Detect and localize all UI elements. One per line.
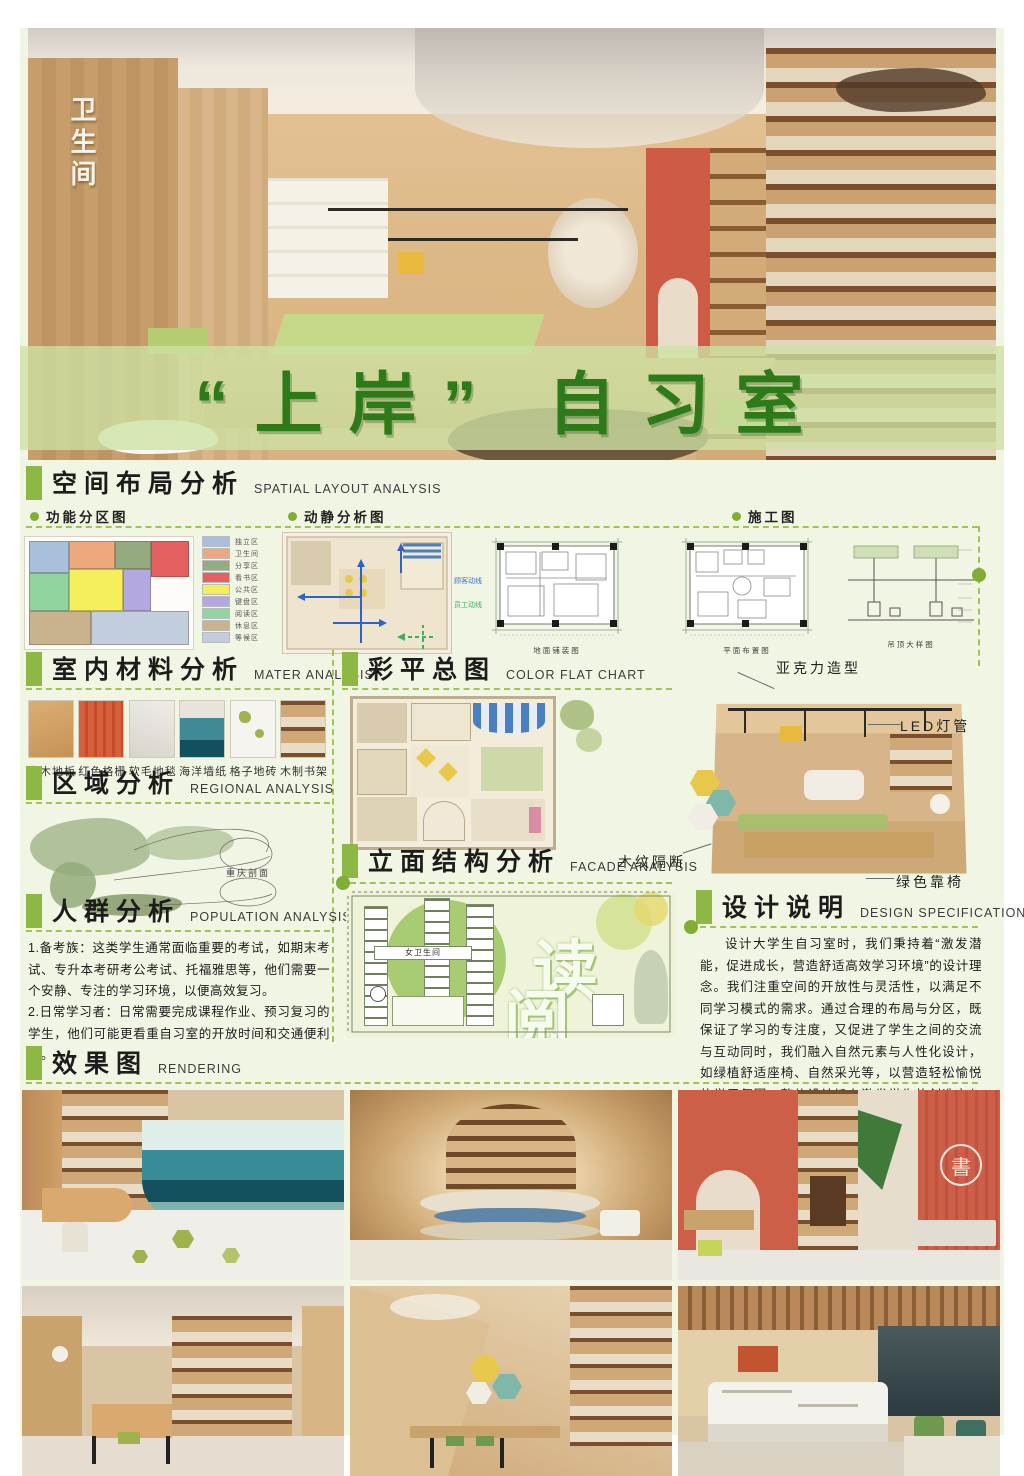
dashed-divider bbox=[26, 802, 330, 804]
dashed-divider bbox=[350, 882, 672, 884]
zoning-plan-diagram bbox=[24, 536, 194, 650]
section-accent-bar bbox=[26, 652, 42, 686]
green-dot bbox=[972, 568, 986, 582]
white-desk bbox=[804, 770, 864, 800]
ceiling-track bbox=[728, 708, 952, 711]
section-accent-bar bbox=[26, 894, 42, 928]
section-title-zh: 效果图 bbox=[52, 1044, 148, 1080]
yellow-panel bbox=[780, 726, 802, 742]
title-band: “上岸” 自习室 bbox=[20, 346, 1004, 450]
leader-line bbox=[866, 878, 894, 879]
dashed-vertical bbox=[332, 650, 334, 1042]
material-swatch-red-grille bbox=[78, 700, 124, 758]
design-poster: 卫生间 “上岸” 自习室 空间布局分析 SPATIAL LAYOUT ANALY… bbox=[0, 0, 1024, 1447]
tree-symbol bbox=[576, 728, 602, 752]
render-thumb-5 bbox=[350, 1286, 672, 1476]
flow-legend: 顾客动线 员工动线 bbox=[454, 576, 482, 610]
paint-splatter-top bbox=[836, 68, 986, 112]
section-title-en: COLOR FLAT CHART bbox=[506, 668, 646, 686]
material-swatch-bookshelf bbox=[280, 700, 326, 758]
dashed-divider bbox=[700, 926, 978, 928]
section-material-header: 室内材料分析 MATER ANALYSIS bbox=[26, 650, 374, 686]
section-accent-bar bbox=[342, 844, 358, 878]
section-accent-bar bbox=[696, 890, 712, 924]
section-title-en: SPATIAL LAYOUT ANALYSIS bbox=[254, 482, 441, 500]
section-title-zh: 设计说明 bbox=[722, 888, 850, 924]
dashed-divider bbox=[26, 688, 330, 690]
section-designspec-header: 设计说明 DESIGN SPECIFICATION bbox=[696, 888, 1024, 924]
flow-analysis-diagram bbox=[282, 532, 452, 654]
zoning-legend: 独立区 卫生间 分享区 看书区 公共区 键盘区 阅读区 休息区 等候区 bbox=[202, 536, 278, 644]
wood-table-row bbox=[744, 832, 934, 858]
sub-label: 功能分区图 bbox=[46, 506, 129, 526]
section-title-en: REGIONAL ANALYSIS bbox=[190, 782, 334, 800]
bullet-icon bbox=[732, 512, 741, 521]
section-population-header: 人群分析 POPULATION ANALYSIS bbox=[26, 892, 352, 928]
bullet-icon bbox=[30, 512, 39, 521]
section-accent-bar bbox=[26, 466, 42, 500]
color-plan-diagram bbox=[350, 696, 556, 850]
section-title-zh: 室内材料分析 bbox=[52, 650, 244, 686]
material-swatch-ocean-wallpaper bbox=[179, 700, 225, 758]
sub-label: 施工图 bbox=[748, 506, 798, 526]
sub-flow-analysis: 动静分析图 bbox=[288, 506, 387, 526]
render-thumb-6 bbox=[678, 1286, 1000, 1476]
section-accent-bar bbox=[26, 1046, 42, 1080]
plan-caption: 平面布置图 bbox=[672, 645, 822, 656]
dashed-divider bbox=[26, 526, 978, 528]
section-spatial-header: 空间布局分析 SPATIAL LAYOUT ANALYSIS bbox=[26, 464, 441, 500]
green-bench bbox=[738, 814, 888, 830]
bullet-icon bbox=[288, 512, 297, 521]
dashed-divider bbox=[26, 930, 330, 932]
section-title-en: POPULATION ANALYSIS bbox=[190, 910, 352, 928]
perspective-render bbox=[684, 674, 984, 896]
cad-plan-1: 地面铺装图 bbox=[482, 534, 632, 656]
round-mirror bbox=[930, 794, 950, 814]
shu-logo: 書 bbox=[940, 1144, 982, 1186]
facade-drawing: 女卫生间 读 阅 bbox=[346, 890, 676, 1038]
render-thumb-4 bbox=[22, 1286, 344, 1476]
annotation-led: LED灯管 bbox=[900, 716, 970, 736]
section-title-zh: 人群分析 bbox=[52, 892, 180, 928]
linear-lamp bbox=[328, 208, 628, 211]
leader-line bbox=[868, 724, 902, 725]
poster-canvas: 卫生间 “上岸” 自习室 空间布局分析 SPATIAL LAYOUT ANALY… bbox=[20, 28, 1004, 1435]
yellow-pendant-lamp bbox=[398, 252, 424, 274]
mini-bookshelf bbox=[890, 734, 952, 792]
section-rendering-header: 效果图 RENDERING bbox=[26, 1044, 242, 1080]
green-dot bbox=[684, 920, 698, 934]
render-thumb-1 bbox=[22, 1090, 344, 1280]
section-accent-bar bbox=[342, 652, 358, 686]
linear-lamp-2 bbox=[388, 238, 578, 241]
section-title-en: RENDERING bbox=[158, 1062, 242, 1080]
map-label: 重庆剖面 bbox=[226, 866, 270, 879]
material-swatch-tile bbox=[230, 700, 276, 758]
section-colorflat-header: 彩平总图 COLOR FLAT CHART bbox=[342, 650, 646, 686]
section-title-zh: 彩平总图 bbox=[368, 650, 496, 686]
material-swatch-carpet bbox=[129, 700, 175, 758]
green-dot bbox=[336, 876, 350, 890]
section-regional-header: 区域分析 REGIONAL ANALYSIS bbox=[26, 764, 334, 800]
sub-construction: 施工图 bbox=[732, 506, 798, 526]
material-swatch-wood-floor bbox=[28, 700, 74, 758]
ceiling-curve bbox=[415, 28, 763, 148]
sub-func-zoning: 功能分区图 bbox=[30, 506, 129, 526]
tree-symbol bbox=[560, 700, 594, 730]
render-thumb-3: 書 bbox=[678, 1090, 1000, 1280]
annotation-wood-partition: 木纹隔断 bbox=[618, 852, 686, 872]
restroom-sign: 卫生间 bbox=[64, 96, 101, 192]
render-thumb-2 bbox=[350, 1090, 672, 1280]
section-title-en: DESIGN SPECIFICATION bbox=[860, 906, 1024, 924]
section-title-zh: 空间布局分析 bbox=[52, 464, 244, 500]
dashed-vertical bbox=[978, 526, 980, 666]
section-title-zh: 立面结构分析 bbox=[368, 842, 560, 878]
sub-label: 动静分析图 bbox=[304, 506, 387, 526]
poster-title: “上岸” 自习室 bbox=[195, 349, 830, 448]
round-window bbox=[548, 198, 638, 308]
dashed-divider bbox=[342, 688, 672, 690]
display-shelf bbox=[268, 178, 388, 298]
section-accent-bar bbox=[26, 766, 42, 800]
section-title-zh: 区域分析 bbox=[52, 764, 180, 800]
detail-drawing: 吊顶大样图 bbox=[848, 540, 974, 650]
cad-plan-2: 平面布置图 bbox=[672, 534, 822, 656]
population-text-1: 1.备考族：这类学生通常面临重要的考试，如期末考试、专升本考研考公考试、托福雅思… bbox=[28, 938, 330, 1003]
plan-caption: 吊顶大样图 bbox=[848, 639, 974, 650]
